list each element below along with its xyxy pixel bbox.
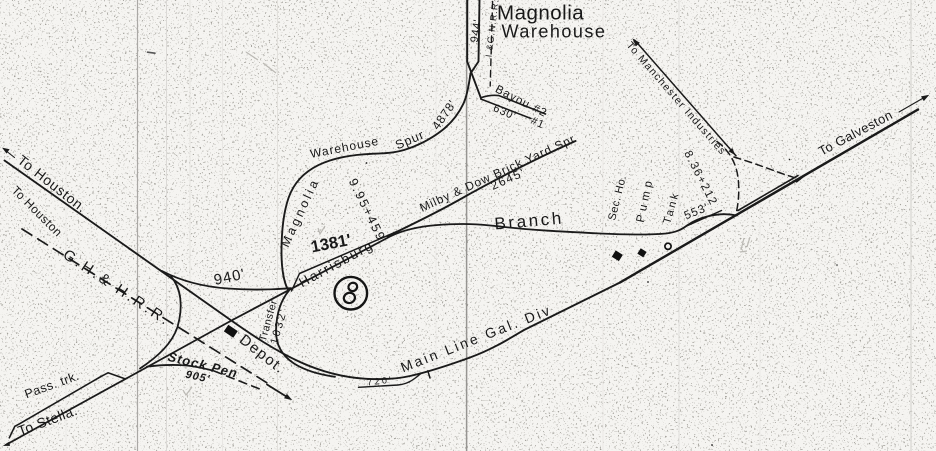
svg-text:Warehouse: Warehouse	[502, 22, 607, 42]
